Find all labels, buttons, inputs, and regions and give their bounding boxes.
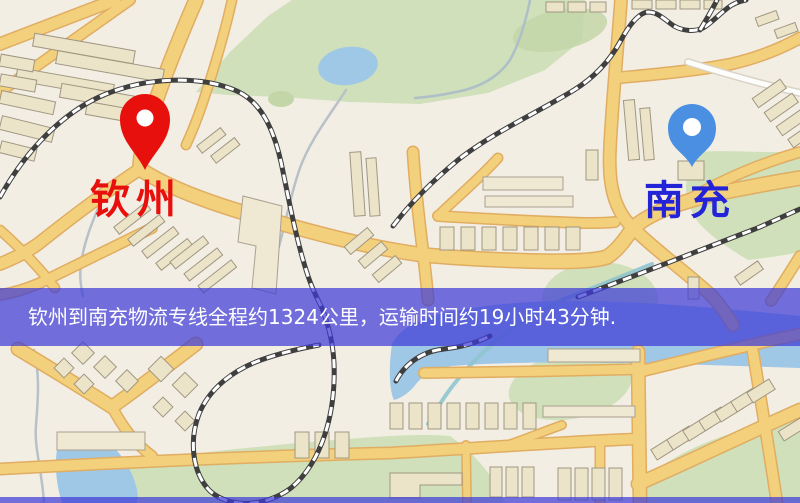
map-canvas[interactable] [0,0,800,503]
route-info-banner: 钦州到南充物流专线全程约1324公里，运输时间约19小时43分钟. [0,288,800,346]
destination-pin-hole [683,118,701,136]
bottom-banner-strip [0,497,800,503]
map-screenshot: 钦州 南充 钦州到南充物流专线全程约1324公里，运输时间约19小时43分钟. [0,0,800,503]
origin-city-label: 钦州 [90,180,182,220]
route-info-text: 钦州到南充物流专线全程约1324公里，运输时间约19小时43分钟. [28,305,616,329]
origin-pin-hole [137,110,154,127]
destination-city-label: 南充 [644,181,736,221]
